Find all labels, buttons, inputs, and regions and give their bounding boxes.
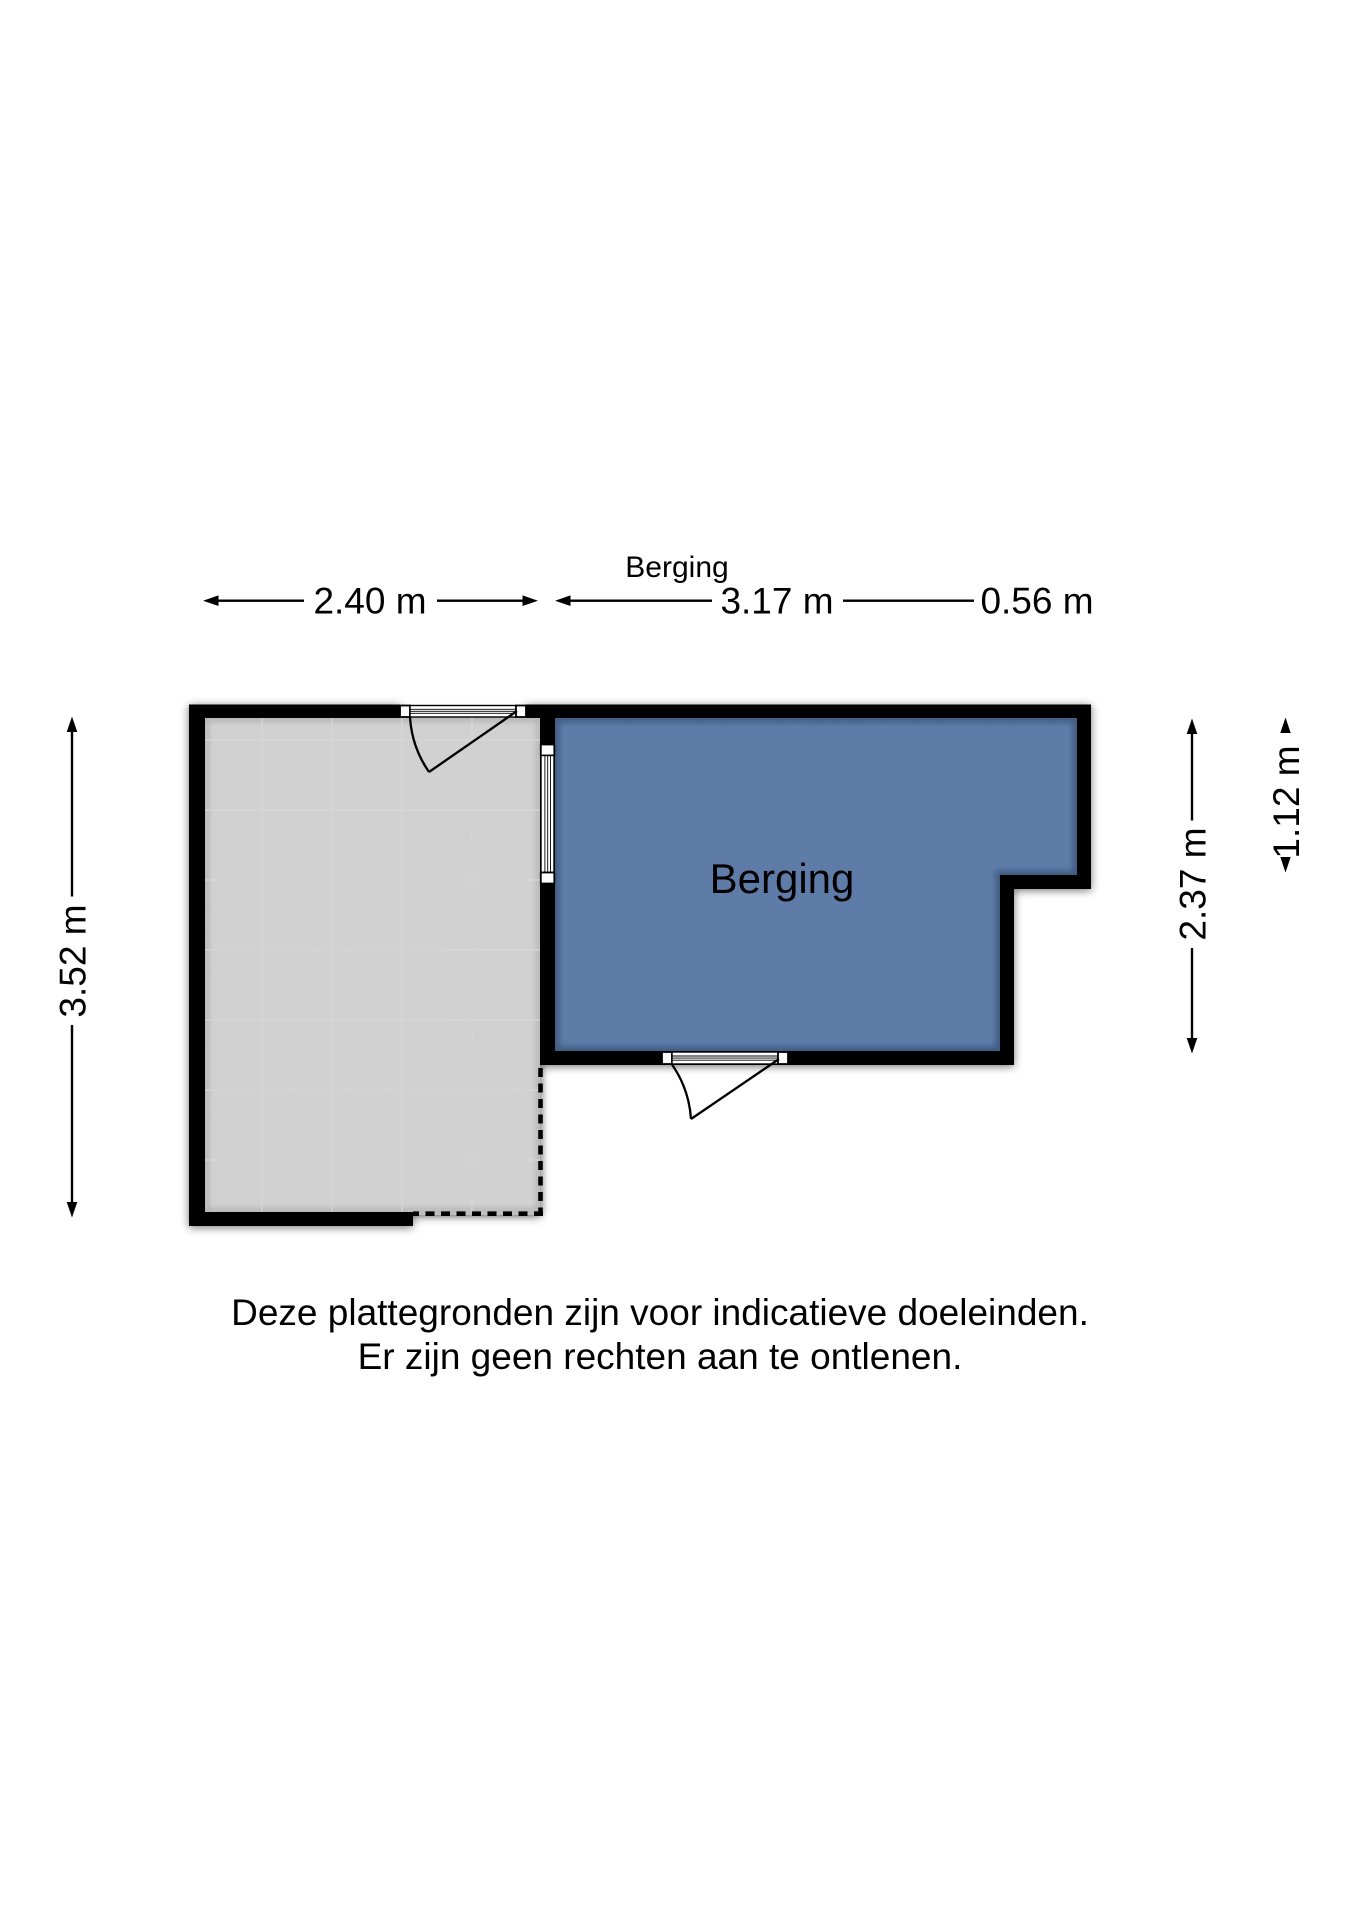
svg-text:Berging: Berging [625, 551, 728, 584]
svg-text:Berging: Berging [710, 855, 855, 902]
svg-text:2.37 m: 2.37 m [1173, 827, 1214, 940]
svg-text:3.52 m: 3.52 m [53, 904, 94, 1017]
svg-text:2.40 m: 2.40 m [313, 581, 426, 622]
svg-text:1.12 m: 1.12 m [1266, 745, 1307, 858]
svg-text:Deze plattegronden zijn voor i: Deze plattegronden zijn voor indicatieve… [231, 1292, 1089, 1333]
svg-text:Er zijn geen rechten aan te on: Er zijn geen rechten aan te ontlenen. [358, 1336, 963, 1377]
svg-text:3.17 m: 3.17 m [720, 581, 833, 622]
svg-text:0.56 m: 0.56 m [980, 581, 1093, 622]
